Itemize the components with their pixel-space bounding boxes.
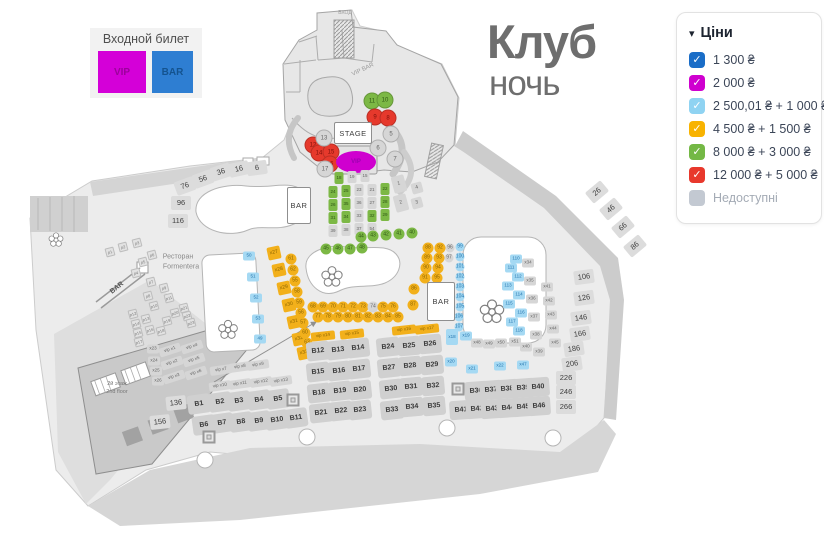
map-tree [439, 420, 456, 437]
map-kn [287, 394, 300, 407]
seat-35[interactable]: 35 [342, 198, 351, 210]
legend-item-1300[interactable]: ✓ 1 300 ₴ [689, 52, 809, 68]
venue-title-line2: ночь [489, 64, 560, 104]
seat-B23: B23 [348, 399, 373, 420]
seat-x44: x44 [547, 325, 559, 334]
seat-p18: p18 [155, 325, 166, 336]
seat-113[interactable]: 113 [502, 282, 514, 291]
seat-p7: p7 [145, 276, 156, 287]
venue-title-line1: Клуб [487, 14, 596, 69]
seat-146: 146 [570, 310, 592, 327]
seat-x26: x26 [152, 377, 164, 386]
seat-246: 246 [556, 385, 576, 399]
seat-p23: p23 [185, 317, 196, 328]
seat-86[interactable]: 86 [409, 284, 420, 295]
legend-item-4500[interactable]: ✓ 4 500 ₴ + 1 500 ₴ [689, 121, 809, 137]
zone-stage: STAGE [334, 122, 372, 144]
seat-31[interactable]: 31 [329, 212, 338, 224]
seat-58[interactable]: 58 [292, 287, 303, 298]
seat-17: 17 [317, 161, 334, 178]
seat-p13: p13 [140, 313, 151, 324]
zone-bar: BAR [287, 187, 311, 224]
seat-x39: x39 [533, 348, 545, 357]
seat-x28[interactable]: x28 [271, 262, 286, 277]
checkbox-icon[interactable]: ✓ [689, 75, 705, 91]
seat-B17: B17 [347, 358, 372, 379]
seat-vip x16[interactable]: vip x16 [392, 324, 417, 335]
seat-B11: B11 [283, 407, 308, 429]
seat-32[interactable]: 32 [368, 210, 377, 222]
seat-x22[interactable]: x22 [494, 362, 506, 371]
seat-38: 38 [342, 224, 351, 236]
seat-106[interactable]: 106 [455, 313, 464, 322]
seat-8[interactable]: 8 [380, 110, 397, 127]
legend-item-8000[interactable]: ✓ 8 000 ₴ + 3 000 ₴ [689, 144, 809, 160]
seat-100[interactable]: 100 [456, 253, 465, 262]
seat-41[interactable]: 41 [394, 229, 405, 240]
map-label: Ресторан [163, 254, 193, 261]
seat-B14: B14 [346, 337, 371, 358]
seat-101[interactable]: 101 [456, 263, 465, 272]
seat-45[interactable]: 45 [321, 244, 332, 255]
seat-166: 166 [569, 326, 591, 343]
seat-15: 15 [361, 170, 370, 182]
seat-46: 46 [599, 197, 623, 221]
seat-x50: x50 [495, 339, 507, 348]
seat-50[interactable]: 50 [243, 252, 255, 261]
legend-item-2000[interactable]: ✓ 2 000 ₴ [689, 75, 809, 91]
seat-96: 96 [446, 244, 455, 253]
seat-p6: p6 [146, 249, 157, 260]
seat-44[interactable]: 44 [356, 232, 367, 243]
seat-vip x3: vip x3 [162, 369, 186, 384]
seat-p9: p9 [158, 282, 169, 293]
seat-vip x6: vip x6 [184, 365, 208, 380]
seat-266: 266 [556, 400, 576, 414]
seat-x43: x43 [545, 311, 557, 320]
seat-115[interactable]: 115 [503, 300, 515, 309]
seat-117[interactable]: 117 [506, 318, 518, 327]
seat-B20: B20 [348, 379, 373, 400]
seat-118[interactable]: 118 [513, 327, 525, 336]
seat-x27[interactable]: x27 [266, 245, 281, 260]
seat-vip x9: vip x9 [246, 359, 269, 371]
seat-B40: B40 [526, 377, 550, 398]
seat-x40: x40 [520, 343, 532, 352]
seat-2: 2 [393, 193, 410, 213]
seat-3: 3 [410, 196, 423, 209]
map-label: VIP BAR [351, 62, 375, 77]
seat-10[interactable]: 10 [377, 92, 394, 109]
seat-25[interactable]: 25 [342, 185, 351, 197]
price-filter-title: Ціни [701, 25, 733, 41]
seat-39: 39 [329, 225, 338, 237]
map-label: Formentera [163, 264, 199, 271]
seat-x36: x36 [526, 295, 538, 304]
collapse-arrow-icon: ▾ [689, 27, 695, 40]
seat-B26: B26 [418, 334, 443, 355]
seat-116: 116 [168, 214, 188, 228]
seat-B46: B46 [527, 396, 551, 417]
seat-51[interactable]: 51 [247, 273, 259, 282]
seat-13: 13 [316, 130, 333, 147]
seat-p2: p2 [117, 241, 128, 252]
seat-21: 21 [368, 184, 377, 196]
legend-item-2500[interactable]: ✓ 2 500,01 ₴ + 1 000 ₴ [689, 98, 809, 114]
seat-43[interactable]: 43 [368, 231, 379, 242]
seat-4: 4 [410, 181, 423, 194]
seat-x47[interactable]: x47 [517, 361, 529, 370]
seat-49[interactable]: 49 [254, 335, 266, 344]
seat-61[interactable]: 61 [286, 254, 297, 265]
seat-B34: B34 [400, 397, 425, 418]
seat-p16: p16 [144, 324, 155, 335]
venue-seatmap-page: { "title": {"line1": "Клуб", "line2": "н… [0, 0, 824, 540]
seat-112[interactable]: 112 [512, 273, 524, 282]
seat-66: 66 [611, 215, 635, 239]
seat-x21[interactable]: x21 [466, 365, 478, 374]
seat-p8: p8 [142, 290, 153, 301]
seat-226: 226 [556, 371, 576, 385]
seat-27: 27 [368, 197, 377, 209]
seat-36: 36 [355, 197, 364, 209]
seat-x20[interactable]: x20 [445, 358, 457, 367]
seat-114[interactable]: 114 [513, 291, 525, 300]
seat-99[interactable]: 99 [456, 243, 465, 252]
seat-p17: p17 [133, 336, 144, 347]
seat-vip x13: vip x13 [269, 375, 292, 387]
seat-186: 186 [563, 341, 585, 358]
seat-p10: p10 [148, 300, 159, 311]
seat-x18[interactable]: x18 [446, 329, 458, 345]
map-label: ВХОД [338, 10, 351, 16]
seat-40[interactable]: 40 [407, 228, 418, 239]
seat-42[interactable]: 42 [381, 230, 392, 241]
map-tree [197, 452, 214, 469]
seat-x23: x23 [147, 345, 159, 354]
entrance-ticket-panel: Входной билет VIP BAR [90, 28, 202, 98]
seat-B31: B31 [399, 377, 424, 398]
checkbox-icon[interactable]: ✓ [689, 121, 705, 137]
seat-22[interactable]: 22 [381, 183, 390, 195]
seat-110[interactable]: 110 [510, 255, 522, 264]
checkbox-icon[interactable]: ✓ [689, 52, 705, 68]
seat-p4: p4 [130, 267, 141, 278]
legend-item-unavailable[interactable]: Недоступні [689, 190, 809, 206]
entrance-bar-ticket[interactable]: BAR [152, 51, 193, 93]
checkbox-icon[interactable]: ✓ [689, 144, 705, 160]
seat-x48: x48 [471, 339, 483, 348]
seat-x45: x45 [549, 339, 561, 348]
seat-33: 33 [355, 210, 364, 222]
seat-104[interactable]: 104 [456, 293, 465, 302]
seat-103[interactable]: 103 [456, 283, 465, 292]
seat-26: 26 [585, 180, 609, 204]
entrance-bar-label: BAR [162, 67, 184, 78]
seat-p12: p12 [127, 308, 138, 319]
seat-48[interactable]: 48 [357, 243, 368, 254]
price-filter-header[interactable]: ▾ Ціни [689, 25, 809, 41]
seat-102[interactable]: 102 [456, 273, 465, 282]
seat-x38: x38 [530, 331, 542, 340]
seat-23: 23 [355, 184, 364, 196]
seat-x41: x41 [541, 283, 553, 292]
seat-156: 156 [149, 414, 170, 430]
seat-x37: x37 [528, 313, 540, 322]
seat-vip x2: vip x2 [160, 355, 184, 370]
entrance-vip-ticket[interactable]: VIP [98, 51, 146, 93]
seat-p5: p5 [137, 256, 148, 267]
entrance-vip-label: VIP [114, 67, 130, 78]
seat-18[interactable]: 18 [335, 172, 344, 184]
map-label: 2й этаж [107, 381, 127, 387]
seat-x35: x35 [524, 277, 536, 286]
seat-19: 19 [348, 171, 357, 183]
seat-87[interactable]: 87 [408, 300, 419, 311]
zone-bar: BAR [427, 282, 455, 321]
seat-126: 126 [573, 290, 595, 307]
seat-34[interactable]: 34 [342, 211, 351, 223]
seat-96: 96 [171, 196, 191, 210]
seat-29[interactable]: 29 [381, 209, 390, 221]
seat-46[interactable]: 46 [333, 244, 344, 255]
seat-116[interactable]: 116 [515, 309, 527, 318]
seat-86: 86 [623, 234, 647, 258]
checkbox-icon[interactable] [689, 190, 705, 206]
map-kn [203, 431, 216, 444]
seat-53[interactable]: 53 [252, 315, 264, 324]
map-label: 2nd floor [106, 389, 127, 395]
seat-x49: x49 [483, 340, 495, 349]
seat-24[interactable]: 24 [329, 186, 338, 198]
seat-vip x11: vip x11 [228, 378, 251, 390]
seat-x24: x24 [148, 357, 160, 366]
seat-B29: B29 [420, 355, 445, 376]
map-tree [545, 430, 562, 447]
checkbox-icon[interactable]: ✓ [689, 167, 705, 183]
seat-85[interactable]: 85 [393, 312, 404, 323]
map-tree [299, 429, 316, 446]
seat-B28: B28 [398, 356, 423, 377]
seat-105[interactable]: 105 [456, 303, 465, 312]
seat-47[interactable]: 47 [345, 244, 356, 255]
seat-136: 136 [165, 395, 186, 411]
price-filter-panel: ▾ Ціни ✓ 1 300 ₴ ✓ 2 000 ₴ ✓ 2 500,01 ₴ … [676, 12, 822, 224]
legend-item-12000[interactable]: ✓ 12 000 ₴ + 5 000 ₴ [689, 167, 809, 183]
seat-x34: x34 [522, 259, 534, 268]
entrance-ticket-label: Входной билет [90, 32, 202, 46]
seat-x42: x42 [543, 297, 555, 306]
seat-206: 206 [561, 356, 583, 373]
seat-7: 7 [387, 151, 404, 168]
seat-28[interactable]: 28 [381, 196, 390, 208]
seat-52[interactable]: 52 [250, 294, 262, 303]
seat-B35: B35 [422, 396, 447, 417]
seat-97: 97 [445, 254, 454, 263]
seat-62[interactable]: 62 [288, 265, 299, 276]
map-kn [452, 383, 465, 396]
seat-p3: p3 [131, 237, 142, 248]
seat-55[interactable]: 55 [290, 276, 301, 287]
seat-p1: p1 [104, 246, 115, 257]
seat-1: 1 [391, 174, 408, 194]
seat-B32: B32 [421, 376, 446, 397]
map-label: BAR [109, 281, 125, 296]
seat-26[interactable]: 26 [329, 199, 338, 211]
seat-106: 106 [573, 269, 595, 286]
seat-VIP[interactable]: VIP [336, 151, 376, 173]
checkbox-icon[interactable]: ✓ [689, 98, 705, 114]
seat-6: 6 [246, 160, 268, 177]
seat-111[interactable]: 111 [505, 264, 517, 273]
seat-x25: x25 [150, 367, 162, 376]
seat-p11: p11 [163, 292, 174, 303]
seat-5: 5 [383, 126, 400, 143]
seat-6: 6 [370, 140, 387, 157]
